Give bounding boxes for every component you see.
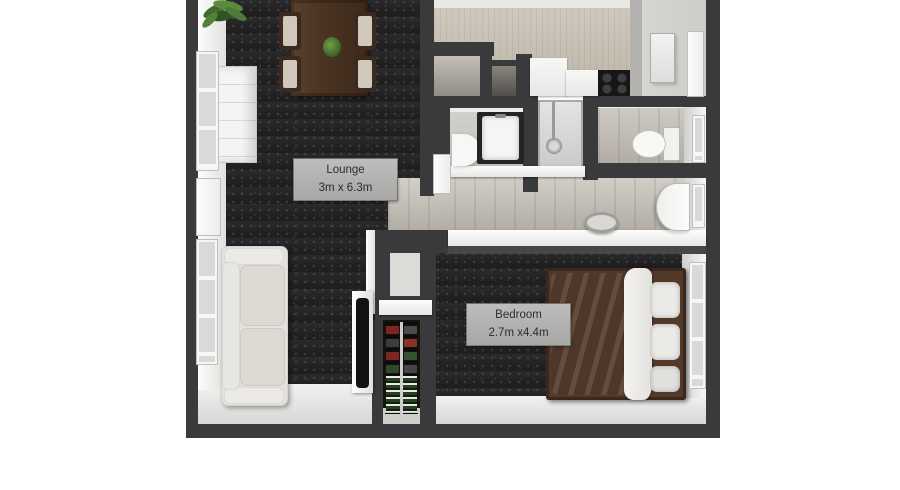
rack-item-red <box>404 339 417 347</box>
cap-niche-top <box>379 300 432 315</box>
rack-item-red <box>386 326 399 334</box>
sofa <box>221 246 288 406</box>
kitchen-counter <box>530 58 567 96</box>
floor-plan-canvas: Lounge 3m x 6.3m Bedroom 2.7m x4.4m <box>0 0 900 490</box>
bed-throw-blanket <box>624 268 652 400</box>
cooktop <box>598 70 630 96</box>
sofa-cushion <box>240 328 285 386</box>
tall-cabinet <box>218 66 257 163</box>
bathroom-door <box>433 154 451 194</box>
toilet-bowl <box>632 130 666 158</box>
cap-bedroom-top <box>448 230 706 246</box>
wc-window <box>693 116 704 162</box>
hallway-window <box>693 185 704 227</box>
entry-wall-panel <box>650 33 675 83</box>
cap-bathroom-bottom <box>445 166 585 177</box>
rack-item-green <box>386 365 399 373</box>
outer-wall-bottom <box>186 424 720 438</box>
storage-closet-small <box>492 66 516 96</box>
rack-item-gray <box>386 339 399 347</box>
chair-seat <box>358 60 372 88</box>
sink-faucet-icon <box>495 114 506 118</box>
chair-seat <box>283 60 297 88</box>
rack-item-gray <box>404 365 417 373</box>
rack-item-gray <box>404 326 417 334</box>
wall-wc-bottom <box>590 163 706 178</box>
wall-bath-shower <box>523 96 538 192</box>
tv <box>356 298 369 388</box>
lounge-label-name: Lounge <box>326 162 364 179</box>
dining-chair <box>354 12 376 50</box>
bedroom-top-wall-shadow <box>448 246 706 254</box>
lounge-side-door <box>196 178 221 236</box>
bedroom-floor-strip <box>436 396 706 424</box>
wall-bedroom-left <box>420 230 436 424</box>
toilet <box>632 125 682 163</box>
lounge-label-dimensions: 3m x 6.3m <box>319 180 373 197</box>
bedroom-label-name: Bedroom <box>495 307 542 324</box>
table-plant <box>323 37 341 57</box>
wall-niche-left <box>372 320 383 424</box>
lounge-window-lower <box>197 240 217 364</box>
dining-chair <box>354 56 376 92</box>
dining-chair <box>279 56 301 92</box>
sink-basin <box>482 116 519 160</box>
bedroom-label: Bedroom 2.7m x4.4m <box>466 303 571 346</box>
hallway-door <box>656 183 690 231</box>
corner-plant <box>194 0 256 36</box>
bed-pillow <box>650 282 680 318</box>
lounge-window-upper <box>197 52 218 170</box>
rack-center-pole <box>400 322 403 414</box>
storage-closet <box>434 56 480 96</box>
lounge-label: Lounge 3m x 6.3m <box>293 158 398 201</box>
bed-folded-blanket <box>650 366 680 392</box>
kitchen-wall-top-sliver <box>434 0 634 8</box>
kitchen-counter-low <box>566 70 599 96</box>
bedroom-window <box>690 263 705 388</box>
shower-rail-icon <box>552 102 555 140</box>
sofa-back <box>222 262 240 390</box>
shoe-rack <box>385 322 418 414</box>
entry-door <box>687 31 704 97</box>
chair-seat <box>283 16 297 46</box>
bed-pillow <box>650 324 680 360</box>
chair-seat <box>358 16 372 46</box>
shower-head-icon <box>546 138 562 154</box>
outer-wall-right <box>706 0 720 438</box>
entry-wall-edge <box>630 0 642 96</box>
hallway-stool <box>584 212 619 233</box>
alcove-floor <box>390 253 420 296</box>
wall-wc-top <box>590 96 706 107</box>
sofa-cushion <box>240 265 285 326</box>
dining-chair <box>279 12 301 50</box>
rack-item-red <box>386 352 399 360</box>
bedroom-label-dimensions: 2.7m x4.4m <box>488 325 548 342</box>
bathroom-sink <box>477 112 524 164</box>
rack-item-green <box>404 352 417 360</box>
